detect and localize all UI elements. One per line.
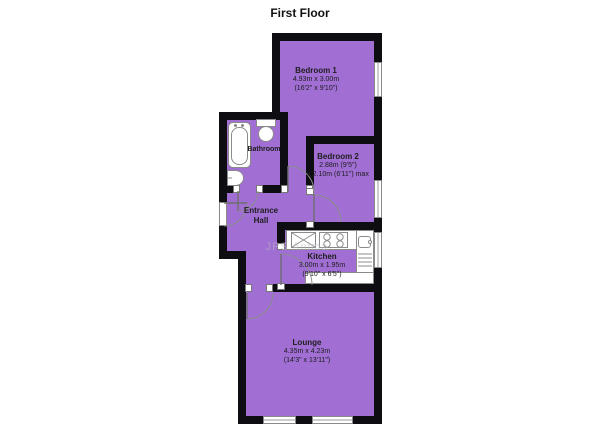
label-bathroom: Bathroom: [240, 146, 288, 155]
bedroom1-name: Bedroom 1: [266, 66, 366, 76]
lounge-name: Lounge: [257, 338, 357, 348]
bedroom1-dim-metric: 4.93m x 3.00m: [266, 76, 366, 85]
bedroom2-dim-imperial: x 2.10m (6'11") max: [292, 171, 384, 180]
label-lounge: Lounge 4.35m x 4.23m (14'3" x 13'11"): [257, 338, 357, 366]
lounge-dim-imperial: (14'3" x 13'11"): [257, 357, 357, 366]
kitchen-dim-imperial: (9'10" x 6'5"): [272, 271, 372, 280]
bathroom-name: Bathroom: [240, 146, 288, 155]
kitchen-name: Kitchen: [272, 252, 372, 262]
label-kitchen: Kitchen 3.00m x 1.95m (9'10" x 6'5"): [272, 252, 372, 280]
lounge-dim-metric: 4.35m x 4.23m: [257, 348, 357, 357]
label-entrance-hall: Entrance Hall: [222, 206, 300, 226]
hob-ring-1: [324, 234, 330, 240]
bedroom2-door-arc: [314, 195, 341, 222]
kitchen-dim-metric: 3.00m x 1.95m: [272, 262, 372, 271]
bedroom2-name: Bedroom 2: [292, 152, 384, 162]
lounge-door-arc: [247, 293, 273, 319]
bedroom1-dim-imperial: (16'2" x 9'10"): [266, 85, 366, 94]
label-bedroom2: Bedroom 2 2.88m (9'5") x 2.10m (6'11") m…: [292, 152, 384, 180]
floorplan-first-floor: First Floor: [0, 0, 600, 436]
hob-ring-2: [337, 234, 343, 240]
label-bedroom1: Bedroom 1 4.93m x 3.00m (16'2" x 9'10"): [266, 66, 366, 94]
bedroom2-dim-metric: 2.88m (9'5"): [292, 162, 384, 171]
entrance-hall-line2: Hall: [222, 216, 300, 226]
entrance-hall-line1: Entrance: [222, 206, 300, 216]
